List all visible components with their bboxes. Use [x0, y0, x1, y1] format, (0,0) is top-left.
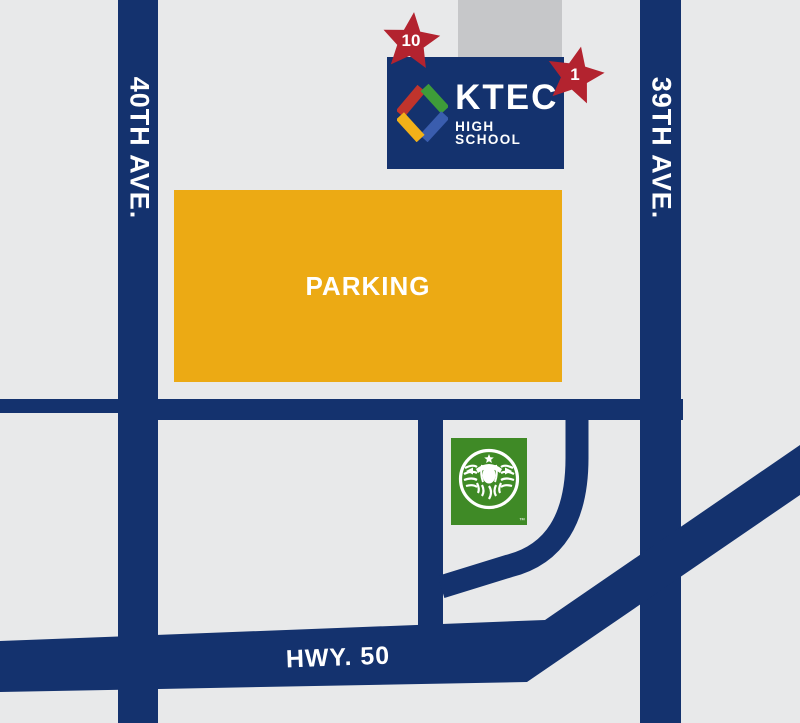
ktec-logo-blue-segment — [424, 115, 446, 139]
marker-number-1: 1 — [570, 65, 579, 85]
siren-crown-star — [484, 454, 494, 463]
ktec-logo-icon — [397, 84, 448, 142]
parking-label: PARKING — [306, 271, 431, 302]
starbucks-location: ™ — [451, 438, 527, 525]
marker-star-1: 1 — [543, 43, 607, 107]
ktec-logo-green-segment — [425, 87, 446, 110]
street-label-39th-ave: 39TH AVE. — [646, 77, 677, 220]
ktec-sign: KTEC HIGH SCHOOL — [387, 57, 564, 169]
road-cross-street-west — [0, 399, 118, 413]
ktec-logo-yellow-segment — [400, 116, 421, 139]
school-subtitle: HIGH SCHOOL — [455, 120, 564, 147]
trademark-symbol: ™ — [519, 518, 525, 524]
ktec-location-map: PARKING KTEC HIGH SCHOOL ™ — [0, 0, 800, 723]
ktec-logo-red-segment — [400, 88, 422, 114]
street-label-40th-ave: 40TH AVE. — [124, 77, 155, 220]
siren-tail-waves — [477, 483, 501, 499]
road-cross-street-main — [118, 399, 683, 420]
marker-number-10: 10 — [402, 31, 421, 51]
marker-star-10: 10 — [379, 9, 443, 73]
road-connector — [418, 420, 443, 635]
siren-face — [483, 467, 496, 484]
street-label-hwy-50: HWY. 50 — [285, 642, 390, 675]
parking-lot: PARKING — [174, 190, 562, 382]
starbucks-siren-icon — [451, 438, 527, 525]
